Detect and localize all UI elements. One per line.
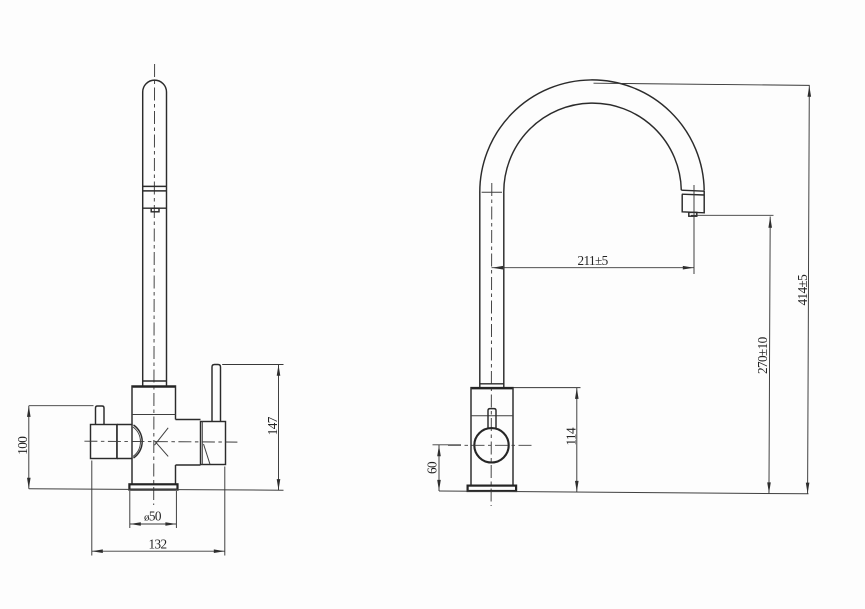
svg-text:414±5: 414±5 [795,274,810,306]
svg-text:132: 132 [149,536,167,551]
svg-text:ø50: ø50 [144,509,162,524]
svg-text:270±10: 270±10 [755,336,770,374]
svg-text:60: 60 [424,461,439,474]
svg-text:147: 147 [265,416,280,435]
svg-text:100: 100 [15,436,30,455]
svg-text:114: 114 [563,427,578,445]
svg-text:211±5: 211±5 [578,253,609,268]
